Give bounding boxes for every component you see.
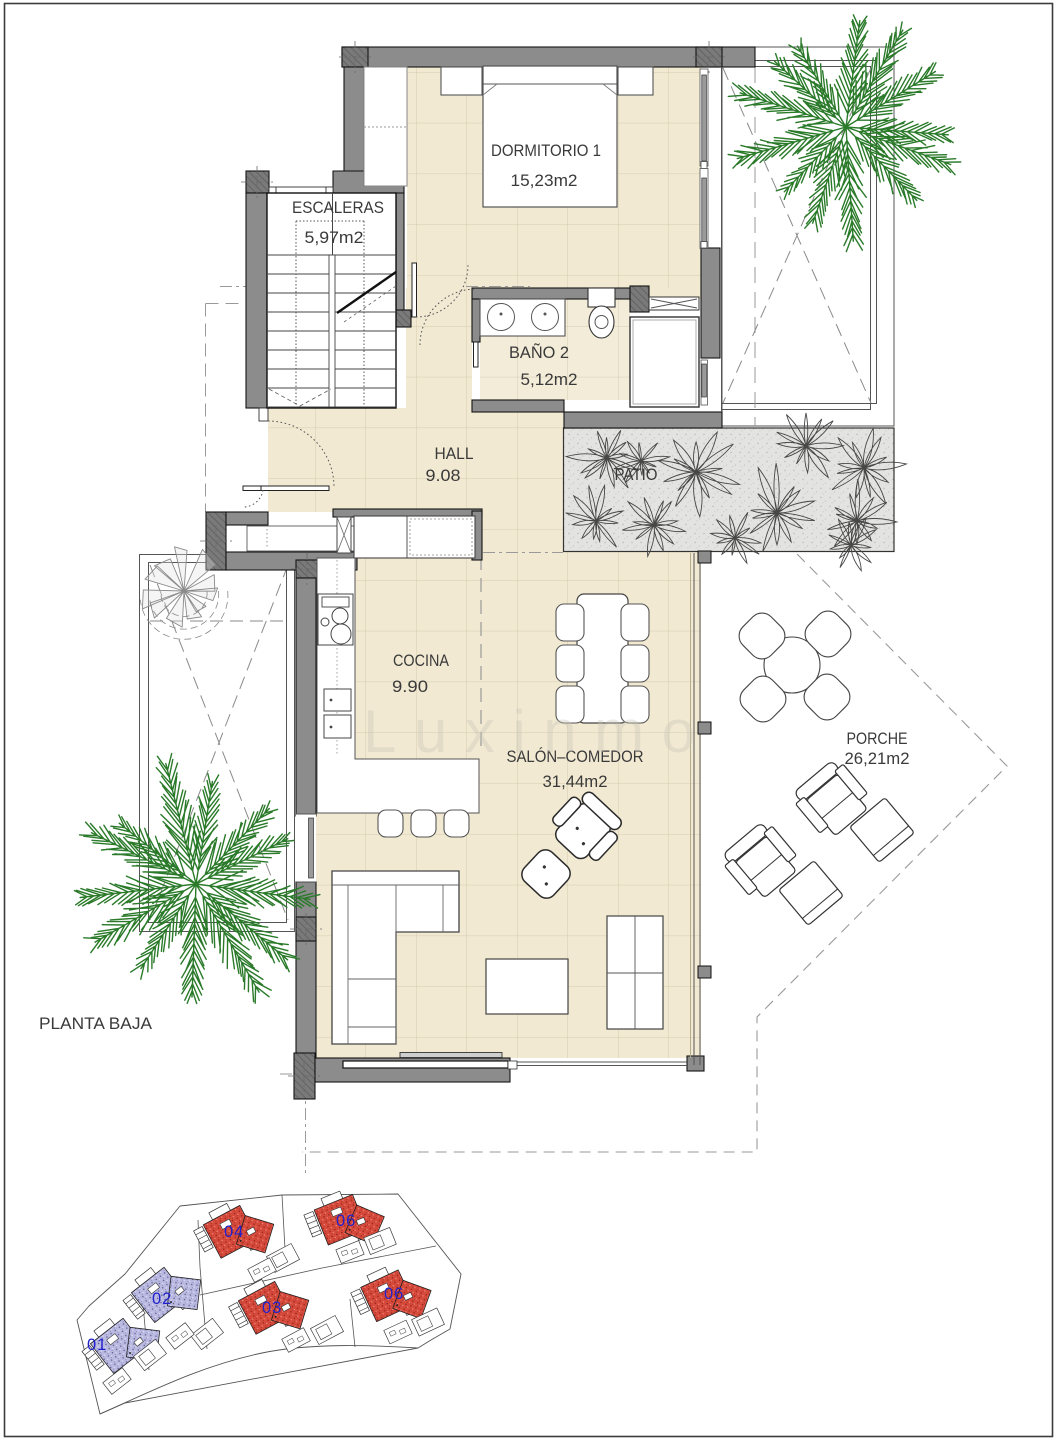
svg-text:06: 06: [384, 1285, 404, 1303]
svg-text:9.08: 9.08: [426, 466, 461, 485]
svg-text:COCINA: COCINA: [393, 651, 450, 670]
svg-text:03: 03: [262, 1299, 282, 1317]
svg-text:PLANTA BAJA: PLANTA BAJA: [39, 1014, 153, 1033]
svg-text:01: 01: [87, 1336, 107, 1354]
svg-text:06: 06: [336, 1212, 356, 1230]
svg-text:04: 04: [224, 1223, 244, 1241]
svg-text:15,23m2: 15,23m2: [511, 171, 578, 190]
svg-text:ESCALERAS: ESCALERAS: [292, 198, 384, 217]
svg-text:5,97m2: 5,97m2: [305, 228, 364, 247]
svg-text:02: 02: [152, 1290, 172, 1308]
svg-text:DORMITORIO 1: DORMITORIO 1: [491, 141, 601, 160]
svg-text:HALL: HALL: [435, 444, 474, 463]
svg-text:5,12m2: 5,12m2: [521, 370, 578, 389]
svg-text:26,21m2: 26,21m2: [845, 749, 910, 768]
svg-text:PORCHE: PORCHE: [847, 729, 908, 748]
svg-text:PATIO: PATIO: [615, 465, 658, 484]
svg-text:BAÑO 2: BAÑO 2: [509, 343, 569, 362]
svg-text:9.90: 9.90: [392, 677, 428, 696]
svg-text:31,44m2: 31,44m2: [543, 772, 608, 791]
